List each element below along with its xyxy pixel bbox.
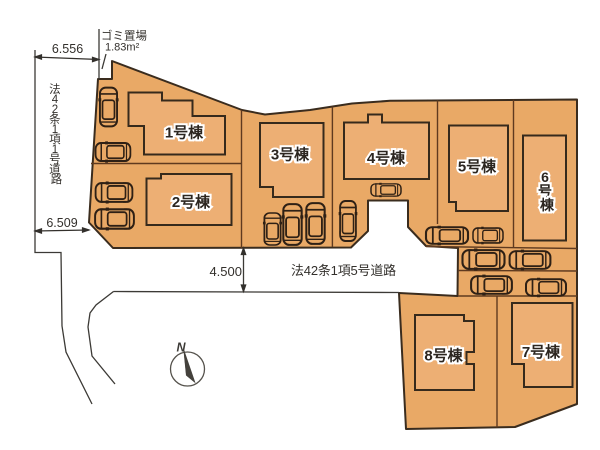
svg-text:N: N — [176, 341, 186, 355]
svg-text:8号棟: 8号棟 — [424, 347, 463, 365]
svg-text:法42条1項5号道路: 法42条1項5号道路 — [291, 263, 396, 278]
svg-text:1.83m²: 1.83m² — [105, 42, 140, 54]
svg-text:5号棟: 5号棟 — [458, 158, 497, 176]
svg-text:2号棟: 2号棟 — [172, 193, 211, 211]
svg-text:3号棟: 3号棟 — [271, 146, 310, 164]
svg-text:4.500: 4.500 — [209, 264, 242, 279]
svg-text:4号棟: 4号棟 — [367, 149, 406, 167]
svg-text:ゴミ置場: ゴミ置場 — [101, 29, 147, 43]
svg-text:1号棟: 1号棟 — [165, 124, 204, 142]
svg-text:6.556: 6.556 — [52, 42, 83, 56]
svg-text:6.509: 6.509 — [46, 216, 77, 230]
svg-text:7号棟: 7号棟 — [522, 343, 561, 361]
